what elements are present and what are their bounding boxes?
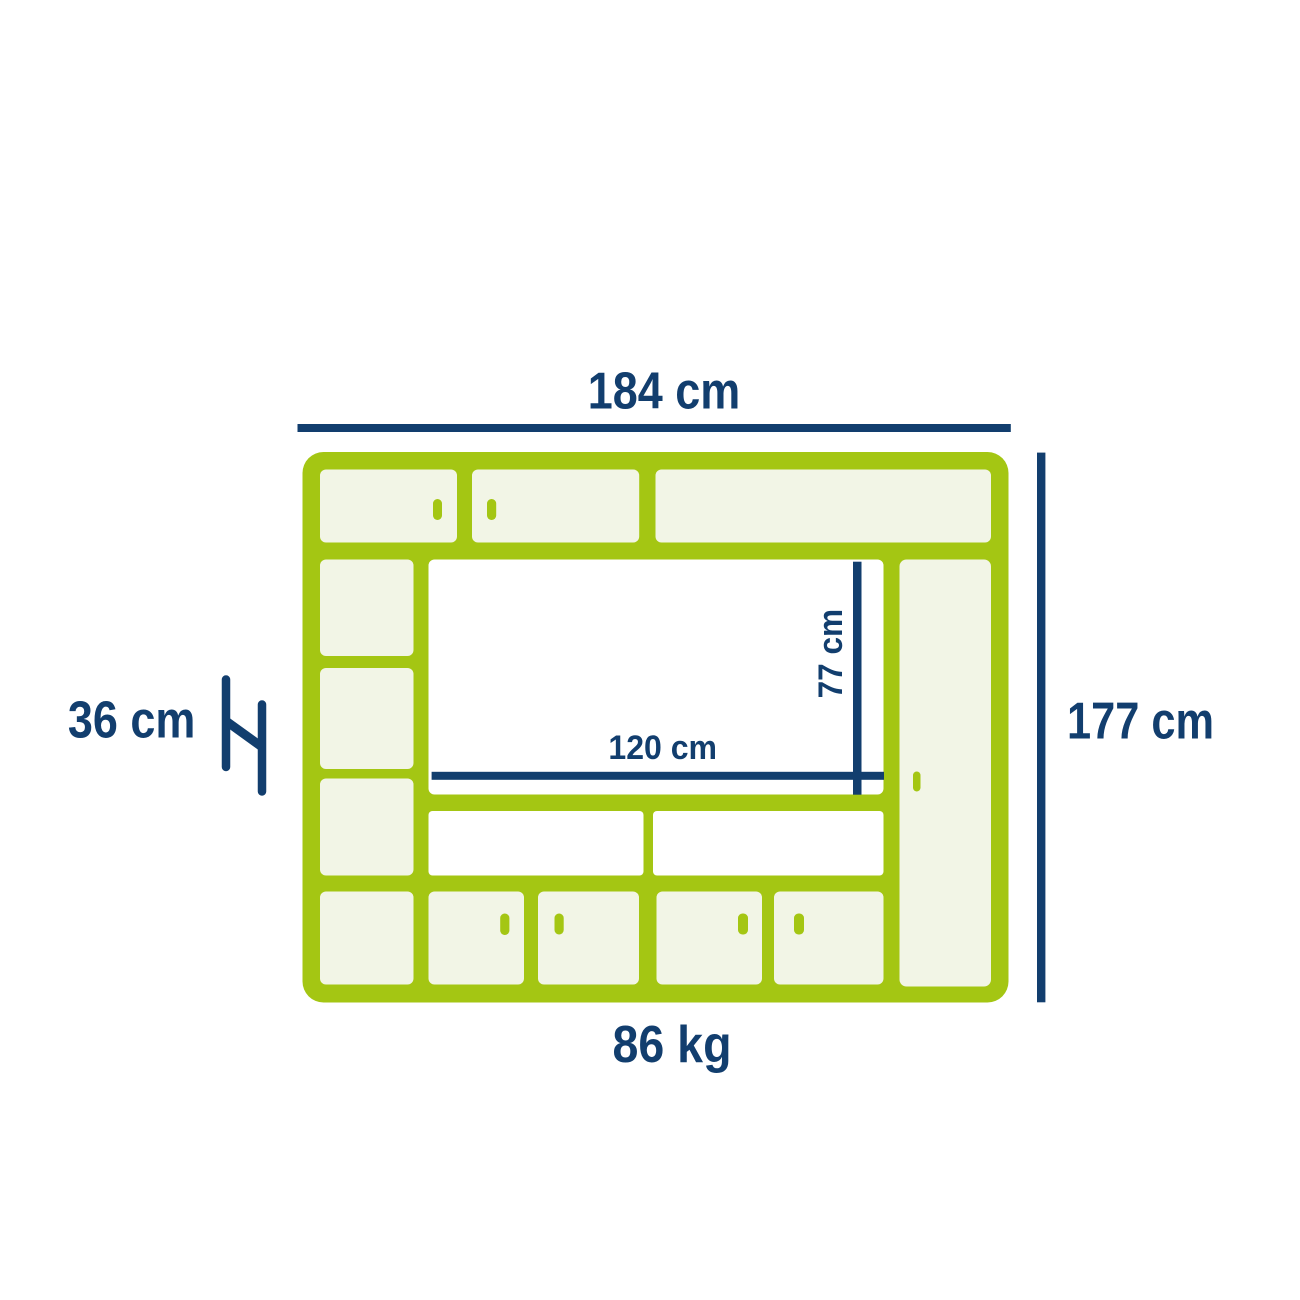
svg-text:120 cm: 120 cm bbox=[608, 729, 717, 767]
svg-text:86 kg: 86 kg bbox=[613, 1016, 732, 1074]
svg-text:177 cm: 177 cm bbox=[1067, 693, 1214, 751]
svg-text:77 cm: 77 cm bbox=[812, 609, 850, 698]
svg-text:36 cm: 36 cm bbox=[68, 692, 196, 750]
svg-text:184 cm: 184 cm bbox=[588, 363, 741, 421]
